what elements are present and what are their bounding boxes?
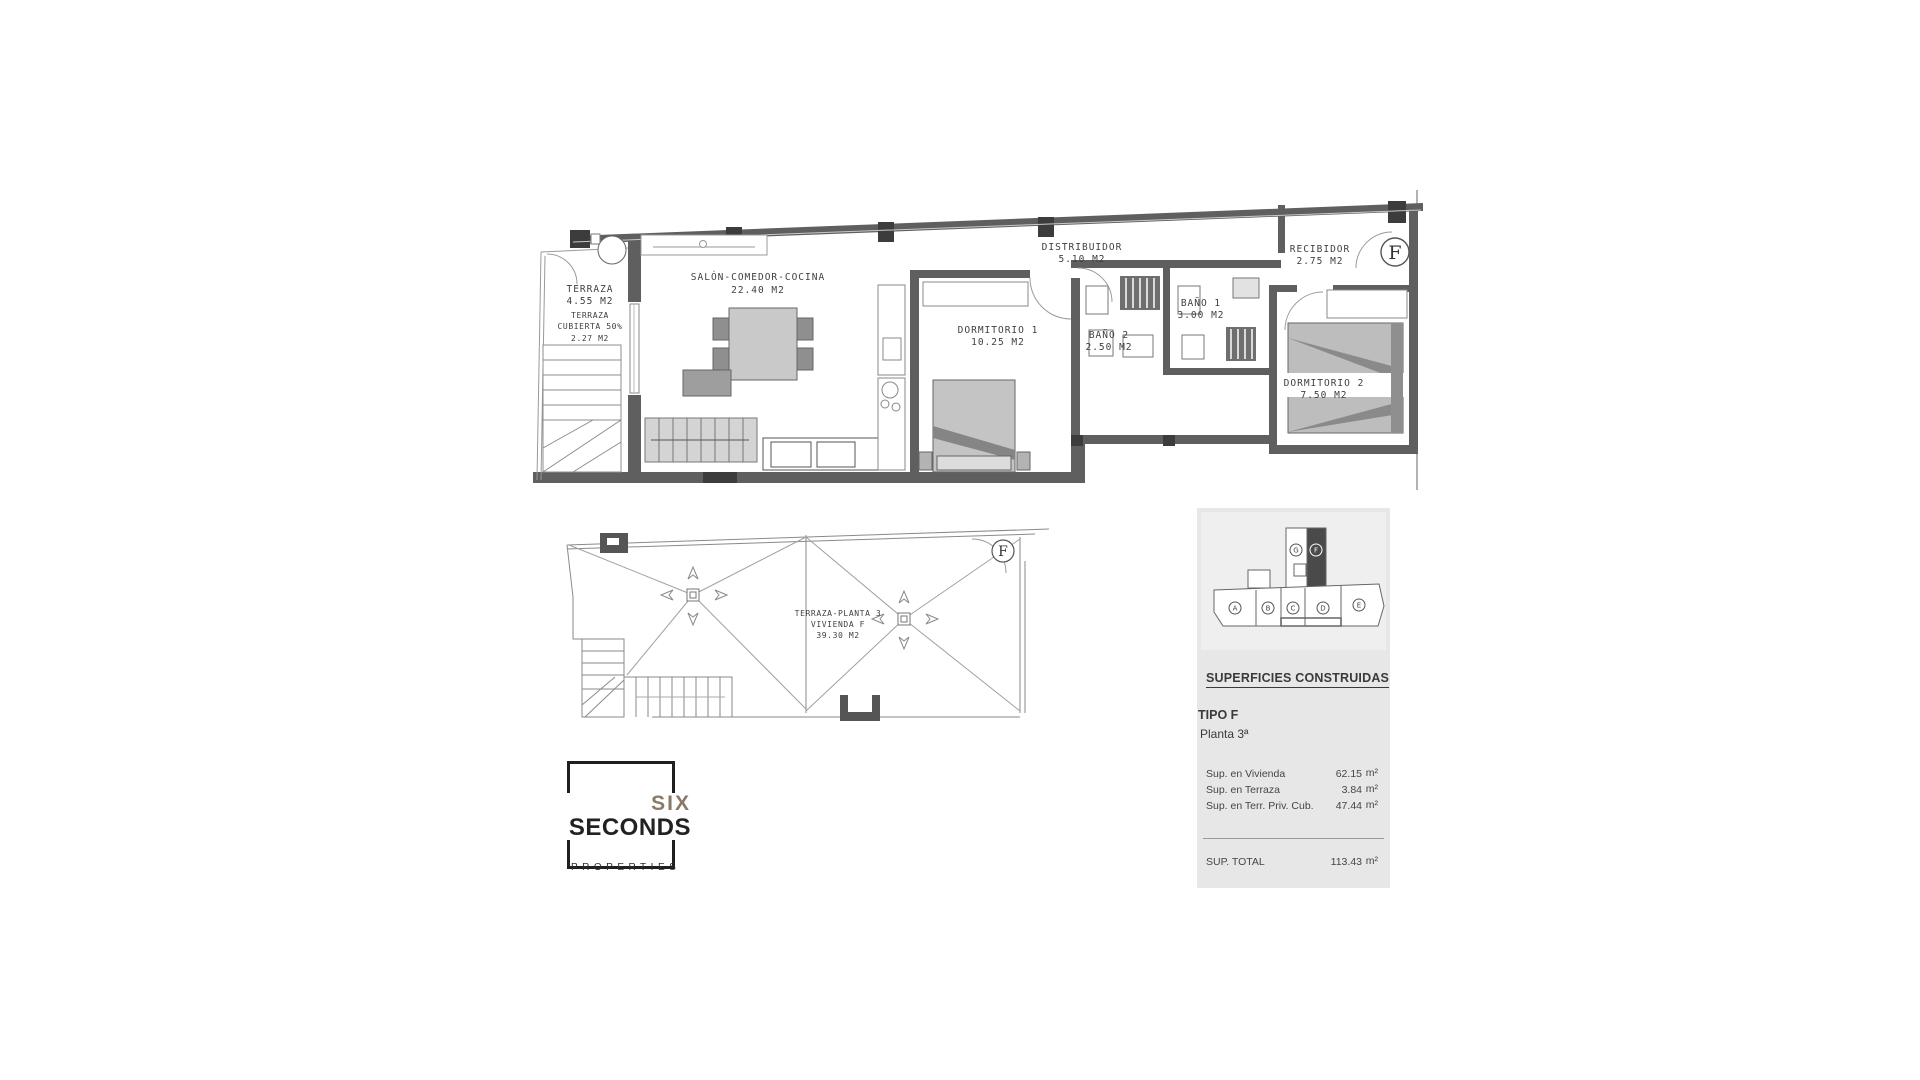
svg-text:2.75 M2: 2.75 M2 [1296,256,1343,267]
surfaces-title: SUPERFICIES CONSTRUIDAS [1206,671,1389,688]
surface-row: Sup. en Terr. Priv. Cub. 47.44 m² [1206,800,1378,815]
surface-row: Sup. en Vivienda 62.15 m² [1206,768,1378,783]
dining-table [713,308,813,380]
kitchen-hob [878,285,905,470]
surfaces-total-row: SUP. TOTAL 113.43 m² [1206,856,1378,871]
svg-text:5.10 M2: 5.10 M2 [1058,254,1105,265]
svg-text:B: B [1266,605,1271,613]
svg-text:A: A [1233,605,1238,613]
floorplan-page: F TERRAZA 4.55 M2 TERRAZA CUBIERTA 50% 2… [0,0,1920,1080]
svg-text:VIVIENDA F: VIVIENDA F [811,620,865,629]
svg-text:7.50 M2: 7.50 M2 [1300,390,1347,401]
bed-dorm2 [1281,290,1407,433]
svg-text:C: C [1291,605,1296,613]
surfaces-panel: A B C D E G F SUPERFICIES CONSTRUIDAS TI… [1197,508,1390,888]
terrace-outline [567,529,1049,717]
upper-floor-plan: F TERRAZA 4.55 M2 TERRAZA CUBIERTA 50% 2… [533,190,1428,495]
key-plan: A B C D E G F [1201,512,1386,650]
svg-text:3.00 M2: 3.00 M2 [1177,310,1224,321]
svg-text:2.27 M2: 2.27 M2 [571,334,609,343]
surfaces-planta: Planta 3ª [1200,727,1248,741]
label-bano2: BAÑO 2 [1089,330,1129,341]
svg-text:D: D [1320,605,1325,613]
terrace-stairs [582,639,725,717]
six-seconds-logo: SIX SECONDS PROPERTIES [557,755,687,887]
key-plan-highlighted-unit: F [1314,547,1318,555]
svg-text:TERRAZA: TERRAZA [571,311,609,320]
logo-seconds: SECONDS [569,816,691,840]
label-terraza: TERRAZA [566,284,613,295]
roof-terrace-plan: F TERRAZA-PLANTA 3 VIVIENDA F 39.30 M2 [557,527,1049,727]
bed-dorm1 [919,282,1030,472]
kitchen-counter [763,438,878,470]
balcony-rail [641,235,767,255]
coffee-table [683,370,731,396]
svg-text:F: F [1388,242,1401,264]
svg-text:10.25 M2: 10.25 M2 [971,337,1025,348]
svg-text:F: F [998,544,1008,560]
label-dormitorio1: DORMITORIO 1 [958,325,1039,336]
logo-wordmark: SIX SECONDS [565,793,691,840]
interior-stairs [645,418,757,462]
label-recibidor: RECIBIDOR [1290,244,1350,255]
svg-text:TERRAZA-PLANTA 3: TERRAZA-PLANTA 3 [795,609,882,618]
label-bano1: BAÑO 1 [1181,298,1221,309]
slope-arrows [661,567,938,649]
logo-six: SIX [569,793,691,814]
svg-text:22.40 M2: 22.40 M2 [731,285,785,296]
terrace-label: TERRAZA-PLANTA 3 VIVIENDA F 39.30 M2 [795,609,882,640]
svg-text:39.30 M2: 39.30 M2 [816,631,859,640]
drainage-slopes [569,537,1020,711]
svg-text:4.55 M2: 4.55 M2 [566,296,613,307]
surface-row: Sup. en Terraza 3.84 m² [1206,784,1378,799]
svg-text:CUBIERTA 50%: CUBIERTA 50% [558,322,623,331]
label-salon: SALÓN-COMEDOR-COCINA [691,271,825,283]
logo-properties: PROPERTIES [571,862,667,873]
label-dormitorio2: DORMITORIO 2 [1284,378,1365,389]
surfaces-divider [1203,838,1384,839]
svg-text:G: G [1293,547,1298,555]
label-distribuidor: DISTRIBUIDOR [1042,242,1123,253]
surfaces-tipo: TIPO F [1198,708,1238,722]
svg-text:2.50 M2: 2.50 M2 [1085,342,1132,353]
svg-text:E: E [1357,602,1361,610]
terraza-stairs [543,345,621,472]
unit-f-marker: F [1381,238,1409,266]
